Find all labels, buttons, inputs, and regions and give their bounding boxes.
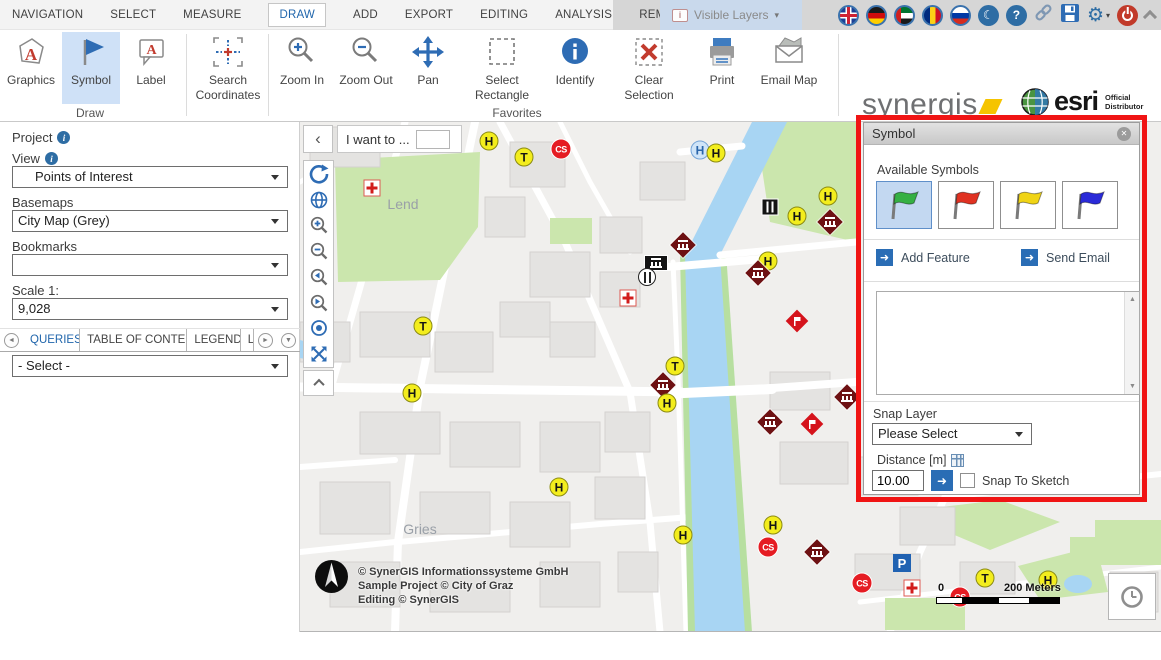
view-label: Viewi [12,151,58,166]
tab-truncated[interactable]: L [241,329,254,351]
print-button[interactable]: Print [694,32,750,104]
settings-gear-icon[interactable]: ⚙▾ [1087,6,1110,25]
group-label-favorites: Favorites [478,106,556,120]
menu-item-add[interactable]: ADD [353,9,378,21]
email-map-button[interactable]: Email Map [754,32,824,104]
tabs-scroll-left-icon[interactable]: ◄ [4,333,19,348]
scroll-up-icon[interactable]: ▲ [1125,292,1140,307]
map-vertical-toolbar [303,160,334,368]
synergis-weboffice-app: NAVIGATION SELECT MEASURE DRAW ADD EXPOR… [0,0,1161,660]
add-feature-button[interactable]: ➜ Add Feature [876,249,970,266]
scalebar-start-label: 0 [938,582,944,594]
marker-pharmacy[interactable] [620,290,637,307]
group-label-draw: Draw [60,106,120,120]
i-want-to-label: I want to ... [346,132,410,147]
marker-stop-t[interactable]: T [515,148,534,167]
comment-info-icon: i [672,9,688,22]
place-label: Gries [403,521,436,537]
yellow-flag-button[interactable] [1000,181,1056,229]
info-icon[interactable]: i [45,152,58,165]
separator [864,239,1139,240]
green-flag-button[interactable] [876,181,932,229]
language-romanian-icon[interactable] [922,5,943,26]
snap-layer-label: Snap Layer [873,407,937,421]
zoom-in-icon [284,32,320,72]
blue-flag-button[interactable] [1062,181,1118,229]
collapse-sidebar-button[interactable]: ‹ [303,125,333,153]
menubar-icons: ☾ ? ⚙▾ [838,0,1155,30]
menu-item-export[interactable]: EXPORT [405,9,453,21]
distance-grid-icon[interactable] [951,454,964,467]
menu-item-draw[interactable]: DRAW [268,3,326,27]
marker-restaurant-dark[interactable] [762,199,779,216]
tabs-menu-icon[interactable]: ▼ [281,333,296,348]
save-icon[interactable] [1060,3,1080,28]
marker-sight[interactable] [786,310,808,332]
tabs-scroll-right-icon[interactable]: ► [258,333,273,348]
map-attribution: © SynerGIS Informationssysteme GmbH Samp… [358,565,568,607]
refresh-icon[interactable] [304,161,333,187]
marker-stop-h[interactable]: H [819,187,838,206]
send-email-button[interactable]: ➜ Send Email [1021,249,1110,266]
tab-table-of-content[interactable]: TABLE OF CONTENT [80,329,187,351]
zoom-out-tool-icon[interactable] [304,238,333,264]
language-english-icon[interactable] [838,5,859,26]
zoom-out-icon [348,32,384,72]
search-coordinates-button[interactable]: Search Coordinates [190,32,266,104]
marker-stop-h[interactable]: H [707,144,726,163]
help-icon[interactable]: ? [1006,5,1027,26]
label-icon: A [133,32,169,72]
marker-cs[interactable]: CS [758,537,779,558]
symbol-panel-title: Symbol [872,126,915,141]
menu-item-measure[interactable]: MEASURE [183,9,241,21]
clear-selection-icon [631,32,667,72]
marker-restaurant-light[interactable] [638,268,656,286]
bookmarks-label: Bookmarks [12,239,77,254]
zoom-next-icon[interactable] [304,290,333,316]
scale-label: Scale 1: [12,283,59,298]
listbox-scrollbar[interactable]: ▲ ▼ [1124,292,1139,394]
chevron-down-icon: ▾ [774,10,779,21]
snap-to-sketch-label: Snap To Sketch [982,474,1069,488]
ribbon-toolbar: A Graphics Symbol A Label Search Coordin… [0,30,1161,122]
available-symbols-label: Available Symbols [877,163,979,177]
globe-full-extent-icon[interactable] [304,187,333,213]
marker-sight[interactable] [801,413,823,435]
separator [864,401,1139,402]
bookmarks-select[interactable] [12,254,288,276]
identify-button[interactable]: Identify [546,32,604,104]
pan-icon [410,32,446,72]
snap-layer-select[interactable]: Please Select [872,423,1032,445]
night-mode-icon[interactable]: ☾ [978,5,999,26]
symbol-list-box[interactable]: ▲ ▼ [876,291,1140,395]
center-target-icon[interactable] [304,316,333,342]
info-icon[interactable]: i [57,131,70,144]
toolbar-collapse-button[interactable] [303,370,334,396]
svg-text:A: A [146,43,157,58]
clock-icon [1119,584,1145,610]
language-german-icon[interactable] [866,5,887,26]
zoom-out-button[interactable]: Zoom Out [334,32,398,104]
separator [864,281,1139,282]
distance-row: ➜ Snap To Sketch [872,470,1069,491]
ribbon-separator [268,34,269,116]
symbol-panel-highlight: Symbol ✕ Available Symbols ➜ Add Feature… [856,115,1147,502]
flag-icon [73,32,109,72]
marker-stop-h[interactable]: H [674,526,693,545]
marker-museum[interactable] [757,409,783,435]
symbol-button[interactable]: Symbol [62,32,120,104]
view-select[interactable]: Points of Interest [12,166,288,188]
marker-cs[interactable]: CS [551,139,572,160]
marker-stop-h[interactable]: H [764,516,783,535]
scalebar-bar [936,597,1060,604]
apply-distance-button[interactable]: ➜ [931,470,953,491]
menu-items: NAVIGATION SELECT MEASURE DRAW ADD EXPOR… [12,0,749,30]
distance-label: Distance [m] [877,453,964,467]
north-compass-icon [314,559,349,599]
marker-stop-t[interactable]: T [976,569,995,588]
printer-icon [704,32,740,72]
esri-logo: esri OfficialDistributor [1020,86,1143,117]
language-arabic-icon[interactable] [894,5,915,26]
visible-layers-dropdown[interactable]: i Visible Layers ▾ [660,0,802,30]
query-select[interactable]: - Select - [12,355,288,377]
snap-to-sketch-checkbox[interactable] [960,473,975,488]
crosshair-icon [210,32,246,72]
tab-legend[interactable]: LEGEND [187,329,240,351]
left-sidebar: Projecti Viewi Points of Interest Basema… [0,122,300,632]
symbol-panel: Symbol ✕ Available Symbols ➜ Add Feature… [863,122,1140,495]
scale-select[interactable]: 9,028 [12,298,288,320]
arrow-right-icon: ➜ [876,249,893,266]
language-russian-icon[interactable] [950,5,971,26]
clear-selection-button[interactable]: Clear Selection [612,32,686,104]
email-map-icon [771,32,807,72]
marker-cs[interactable]: CS [852,573,873,594]
link-icon[interactable] [1034,3,1053,27]
menu-item-analysis[interactable]: ANALYSIS [555,9,612,21]
menu-item-select[interactable]: SELECT [110,9,156,21]
dashed-rectangle-icon [484,32,520,72]
zoom-in-button[interactable]: Zoom In [272,32,332,104]
marker-stop-h[interactable]: H [480,132,499,151]
visible-layers-label: Visible Layers [694,8,768,22]
marker-pharmacy[interactable] [364,180,381,197]
select-rectangle-button[interactable]: Select Rectangle [466,32,538,104]
marker-stop-h[interactable]: H [403,384,422,403]
zoom-previous-icon[interactable] [304,264,333,290]
chevron-up-icon [313,379,324,390]
distance-input[interactable] [872,470,924,491]
marker-stop-h[interactable]: H [788,207,807,226]
sidebar-tabstrip: ◄ QUERIES TABLE OF CONTENT LEGEND L ► ▼ [0,328,300,352]
expand-extent-icon[interactable] [304,341,333,367]
time-slider-button[interactable] [1108,573,1156,620]
arrow-right-icon: ➜ [1021,249,1038,266]
marker-stop-h[interactable]: H [658,394,677,413]
marker-stop-h[interactable]: H [550,478,569,497]
tab-queries[interactable]: QUERIES [23,329,80,351]
close-icon[interactable]: ✕ [1117,127,1131,141]
marker-pharmacy[interactable] [904,580,921,597]
basemaps-select[interactable]: City Map (Grey) [12,210,288,232]
collapse-menubar-icon[interactable] [1143,10,1157,24]
marker-parking[interactable]: P [893,554,911,572]
power-logout-icon[interactable] [1117,5,1138,26]
graphics-button[interactable]: A Graphics [2,32,60,104]
zoom-in-tool-icon[interactable] [304,213,333,239]
menu-item-navigation[interactable]: NAVIGATION [12,9,83,21]
svg-text:A: A [25,45,38,64]
scalebar-end-label: 200 Meters [1004,582,1061,594]
ribbon-separator [838,34,839,116]
i-want-to-input[interactable] [416,130,450,149]
symbol-panel-header[interactable]: Symbol ✕ [864,123,1139,145]
project-label: Projecti [12,130,70,145]
marker-museum[interactable] [817,209,843,235]
marker-museum[interactable] [804,539,830,565]
place-label: Lend [387,196,418,212]
top-menubar: NAVIGATION SELECT MEASURE DRAW ADD EXPOR… [0,0,1161,30]
marker-stop-t[interactable]: T [414,317,433,336]
info-circle-icon [557,32,593,72]
graphics-icon: A [13,32,49,72]
basemaps-label: Basemaps [12,195,73,210]
label-button[interactable]: A Label [122,32,180,104]
esri-globe-icon [1020,87,1050,117]
red-flag-button[interactable] [938,181,994,229]
synergis-mark [978,99,1002,114]
menu-item-editing[interactable]: EDITING [480,9,528,21]
marker-museum[interactable] [670,232,696,258]
marker-museum[interactable] [745,260,771,286]
scroll-down-icon[interactable]: ▼ [1125,379,1140,394]
i-want-to-box[interactable]: I want to ... [337,125,462,153]
ribbon-separator [186,34,187,116]
pan-button[interactable]: Pan [402,32,454,104]
